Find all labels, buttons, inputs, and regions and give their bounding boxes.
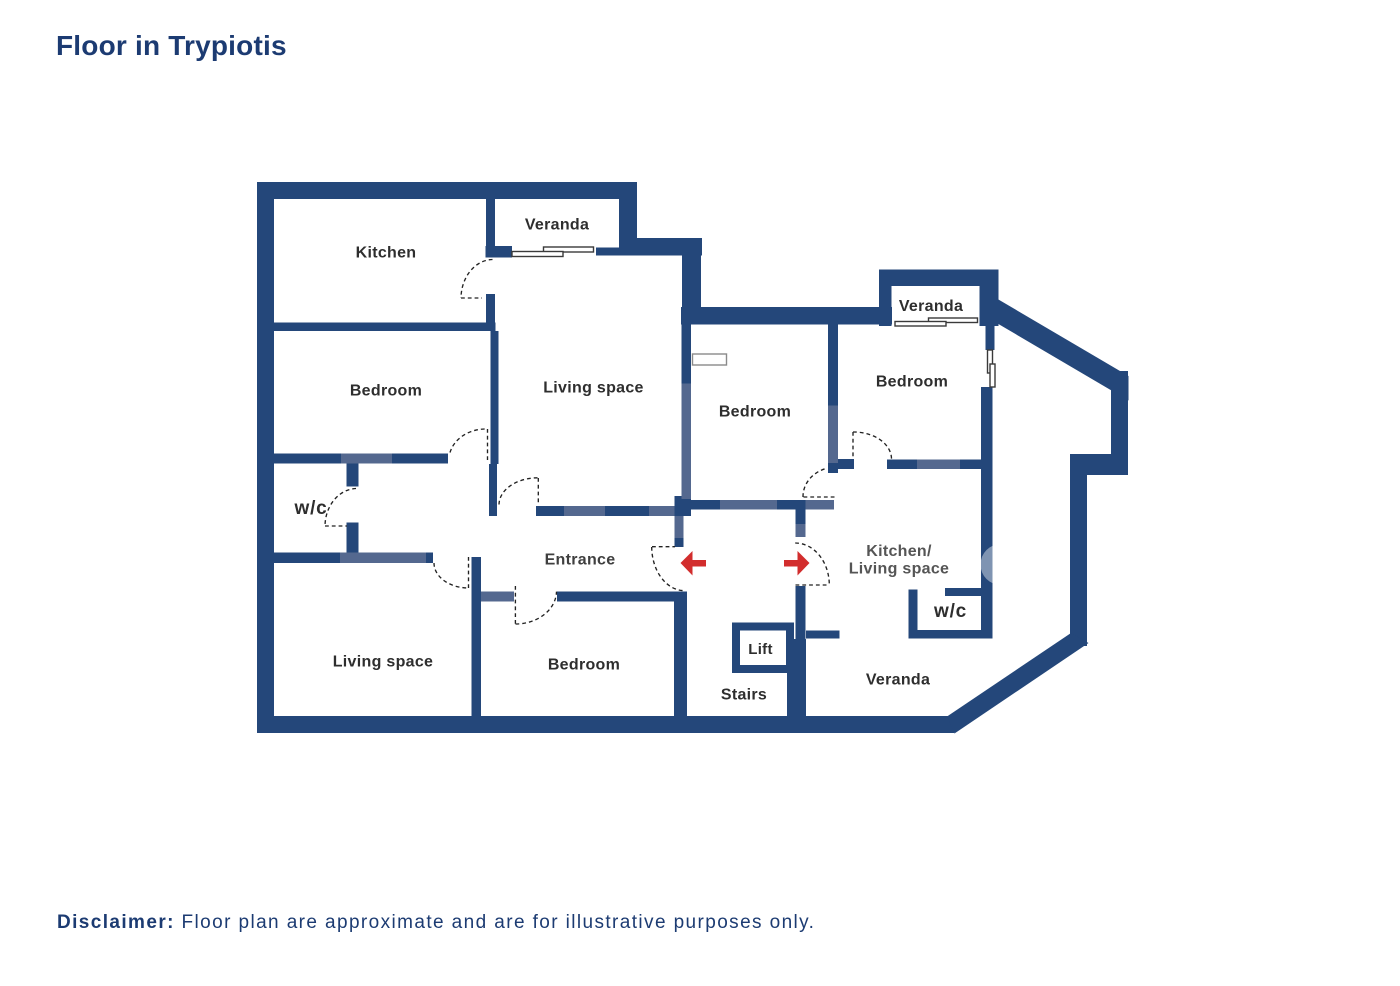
svg-text:w/c: w/c <box>293 498 327 519</box>
svg-text:Living space: Living space <box>849 561 950 578</box>
svg-text:Kitchen: Kitchen <box>356 245 417 262</box>
svg-text:Stairs: Stairs <box>721 687 767 704</box>
svg-text:Kitchen/: Kitchen/ <box>866 543 932 560</box>
svg-text:Veranda: Veranda <box>525 217 589 234</box>
svg-text:Bedroom: Bedroom <box>548 657 620 674</box>
svg-text:Living space: Living space <box>543 380 644 397</box>
svg-text:Bedroom: Bedroom <box>350 383 422 400</box>
svg-text:Entrance: Entrance <box>545 552 616 569</box>
svg-text:Lift: Lift <box>748 641 773 658</box>
svg-text:Living space: Living space <box>333 654 434 671</box>
svg-text:Disclaimer: Floor plan are app: Disclaimer: Floor plan are approximate a… <box>57 912 815 933</box>
svg-text:w/c: w/c <box>933 601 967 622</box>
svg-text:Bedroom: Bedroom <box>719 404 791 421</box>
svg-text:Bedroom: Bedroom <box>876 374 948 391</box>
svg-text:Veranda: Veranda <box>899 298 963 315</box>
svg-text:Floor in Trypiotis: Floor in Trypiotis <box>56 30 287 61</box>
svg-text:Veranda: Veranda <box>866 672 930 689</box>
